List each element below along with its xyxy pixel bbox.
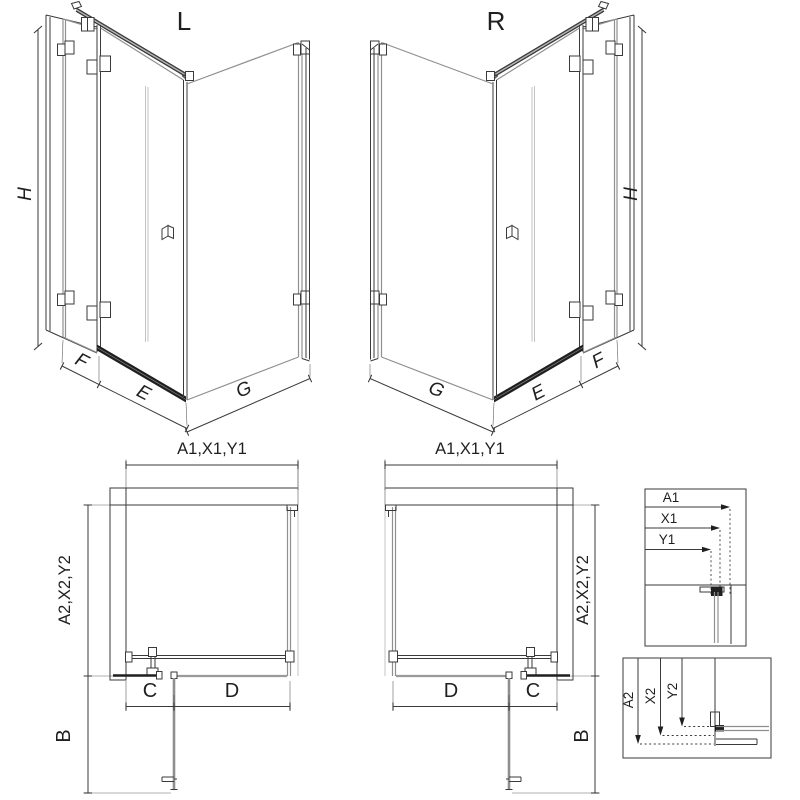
plan-depth-left: A2,X2,Y2 — [56, 555, 74, 625]
wall-back-left-plan — [110, 488, 298, 505]
detail-depth-x2: X2 — [643, 688, 658, 705]
dim-fixed-right: F — [589, 348, 610, 373]
wall-side-left-plan — [110, 488, 126, 680]
variant-label-left: L — [177, 6, 191, 36]
plan-swing-left: B — [53, 729, 75, 742]
dim-height-right: H — [621, 187, 642, 201]
iso-view-left: L H F E G — [15, 2, 312, 436]
detail-width-x1: X1 — [661, 511, 678, 526]
dim-fixed-left: F — [72, 349, 93, 374]
detail-box-width: A1 X1 Y1 — [645, 489, 746, 646]
dim-side-left: G — [233, 377, 255, 402]
plan-fixed-right: C — [526, 680, 540, 702]
wall-back-right-plan — [385, 488, 573, 505]
dim-height-left: H — [15, 187, 36, 201]
dim-side-right: G — [425, 377, 447, 402]
detail-width-y1: Y1 — [659, 532, 676, 547]
detail-width-a1: A1 — [663, 490, 680, 505]
plan-view-right: A1,X1,Y1 A2,X2,Y2 C D B — [385, 440, 600, 793]
plan-door-left: D — [225, 680, 239, 702]
plan-door-right: D — [444, 680, 458, 702]
shower-enclosure-diagram: L H F E G R H F E G A1,X1,Y1 A2,X2,Y2 C … — [0, 0, 800, 800]
detail-depth-y2: Y2 — [665, 683, 680, 700]
plan-view-left: A1,X1,Y1 A2,X2,Y2 C D B — [53, 440, 298, 793]
plan-width-left: A1,X1,Y1 — [177, 440, 247, 458]
detail-box-depth: A2 X2 Y2 — [621, 658, 771, 758]
wall-side-right-plan — [557, 488, 573, 680]
detail-depth-a2: A2 — [621, 692, 636, 709]
iso-view-right: R H F E G — [368, 2, 646, 436]
plan-depth-right: A2,X2,Y2 — [574, 555, 592, 625]
plan-fixed-left: C — [143, 680, 157, 702]
plan-swing-right: B — [571, 729, 593, 742]
variant-label-right: R — [487, 6, 506, 36]
dim-door-left: E — [133, 381, 154, 406]
plan-width-right: A1,X1,Y1 — [435, 440, 505, 458]
